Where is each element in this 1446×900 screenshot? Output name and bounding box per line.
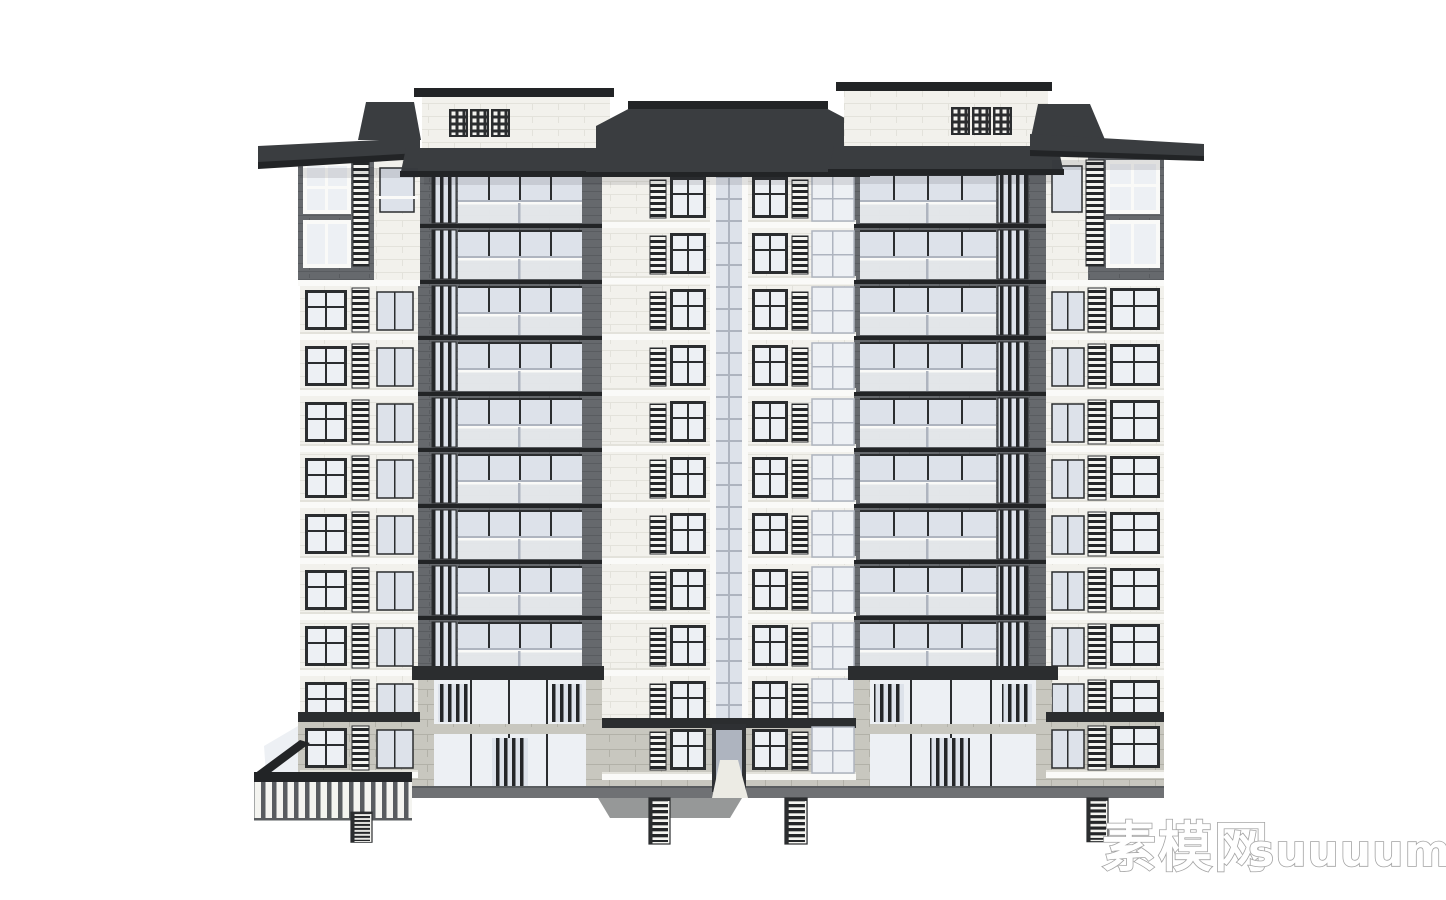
- main-entrance: [712, 724, 748, 798]
- eave-shadow: [424, 176, 602, 185]
- tower-right-base: [848, 666, 1058, 792]
- center-hip-roof: [586, 101, 870, 177]
- fretwork-motif: [450, 110, 467, 136]
- fence-slat-wall: [254, 782, 412, 820]
- wing-left-base-windows: [300, 726, 418, 778]
- balcony-rail: [376, 196, 418, 199]
- fretwork-motif: [994, 108, 1011, 134]
- base-cornice: [848, 666, 1058, 680]
- floor-instance: [300, 624, 418, 676]
- floor-instance: [300, 400, 418, 452]
- parapet-coping: [836, 82, 1052, 91]
- floor-instance: [418, 230, 602, 284]
- left-hip-block: [358, 102, 421, 140]
- central-core-shaft: [704, 156, 754, 792]
- corner-window-white-frame: [1106, 220, 1160, 268]
- tower-left-base: [412, 666, 604, 792]
- floor-instance: [300, 456, 418, 508]
- window-mullion-v: [325, 224, 328, 264]
- watermark-latin-text: suuuum.com: [1248, 826, 1446, 877]
- fretwork-panel: [450, 110, 509, 136]
- slat-screen-upper: [1002, 684, 1032, 722]
- base-cornice: [412, 666, 604, 680]
- floor-instance: [1046, 344, 1164, 396]
- floor-instance: [418, 342, 602, 396]
- floor-instance: [1046, 568, 1164, 620]
- fretwork-panel: [952, 108, 1011, 134]
- eave-shadow: [602, 177, 856, 185]
- slab-band: [298, 280, 420, 286]
- parapet-right: [828, 82, 1064, 175]
- slat-screen-upper: [552, 684, 582, 722]
- watermark-cn-text: 素模网: [1102, 816, 1270, 879]
- floor-instance: [1046, 288, 1164, 340]
- floor-instance: [854, 454, 1052, 508]
- floor-instance: [300, 288, 418, 340]
- floor-instance: [854, 286, 1052, 340]
- fretwork-motif: [471, 110, 488, 136]
- fretwork-motif: [952, 108, 969, 134]
- tower-left-floors: [418, 174, 602, 676]
- building-elevation-render: 素模网 suuuum.com: [0, 0, 1446, 900]
- eave-shadow: [1052, 160, 1164, 170]
- floor-instance: [1046, 512, 1164, 564]
- fretwork-motif: [492, 110, 509, 136]
- base-band: [1046, 712, 1164, 722]
- floor-instance: [300, 568, 418, 620]
- basement-ladder: [785, 798, 807, 844]
- base-band: [298, 712, 420, 722]
- slat-screen-upper: [438, 684, 468, 722]
- tall-louver-vent: [1086, 160, 1104, 266]
- core-pier-right: [742, 160, 748, 792]
- stone-pier: [854, 680, 870, 792]
- slat-screen-upper: [874, 684, 904, 722]
- floor-instance: [854, 566, 1052, 620]
- fence-base-line: [254, 818, 412, 821]
- fretwork-motif: [973, 108, 990, 134]
- floor-instance: [300, 344, 418, 396]
- core-pier-left: [710, 160, 716, 792]
- floor-instance: [1046, 624, 1164, 676]
- window-mullion-h: [1110, 184, 1156, 187]
- floor-instance: [300, 512, 418, 564]
- parapet-eave-fascia: [828, 169, 1064, 175]
- fence-coping: [254, 772, 412, 782]
- corner-window-white-frame: [303, 220, 351, 268]
- floor-instance: [1046, 456, 1164, 508]
- floor-instance: [854, 398, 1052, 452]
- floor-instance: [418, 566, 602, 620]
- stone-pier: [418, 680, 434, 792]
- window-mullion-v: [1131, 224, 1134, 264]
- transom-band: [434, 724, 586, 734]
- floor-instance: [854, 510, 1052, 564]
- render-canvas: 素模网 suuuum.com: [0, 0, 1446, 900]
- slat-screen-lower: [492, 738, 528, 790]
- floor-instance: [418, 510, 602, 564]
- floor-instance: [854, 342, 1052, 396]
- wing-right-base: [1046, 712, 1164, 792]
- floor-instance: [1046, 400, 1164, 452]
- floor-instance: [418, 398, 602, 452]
- window-mullion-h: [307, 186, 347, 189]
- wing-right-base-windows: [1046, 726, 1164, 778]
- slat-screen-lower: [930, 738, 970, 790]
- tower-right-floors: [854, 174, 1052, 676]
- glazing-mullion: [990, 680, 992, 792]
- glazing-mullion: [470, 680, 472, 792]
- eave-shadow: [856, 175, 1052, 184]
- core-center-mullion: [728, 160, 730, 792]
- glazing-mullion: [546, 680, 548, 792]
- ridge-cap: [628, 101, 828, 109]
- watermark: 素模网 suuuum.com: [1102, 816, 1446, 879]
- stone-pier: [586, 680, 602, 792]
- floor-instance: [418, 454, 602, 508]
- parapet-coping: [414, 88, 614, 97]
- eave-shadow: [300, 168, 418, 178]
- slab-band: [1046, 280, 1164, 286]
- eave-fascia: [586, 172, 870, 177]
- transom-band: [870, 724, 1036, 734]
- basement-ladder: [351, 812, 372, 842]
- basement-ladder: [649, 798, 670, 844]
- floor-instance: [854, 230, 1052, 284]
- floor-instance: [418, 286, 602, 340]
- parapet-wall: [844, 91, 1048, 148]
- glazing-mullion: [910, 680, 912, 792]
